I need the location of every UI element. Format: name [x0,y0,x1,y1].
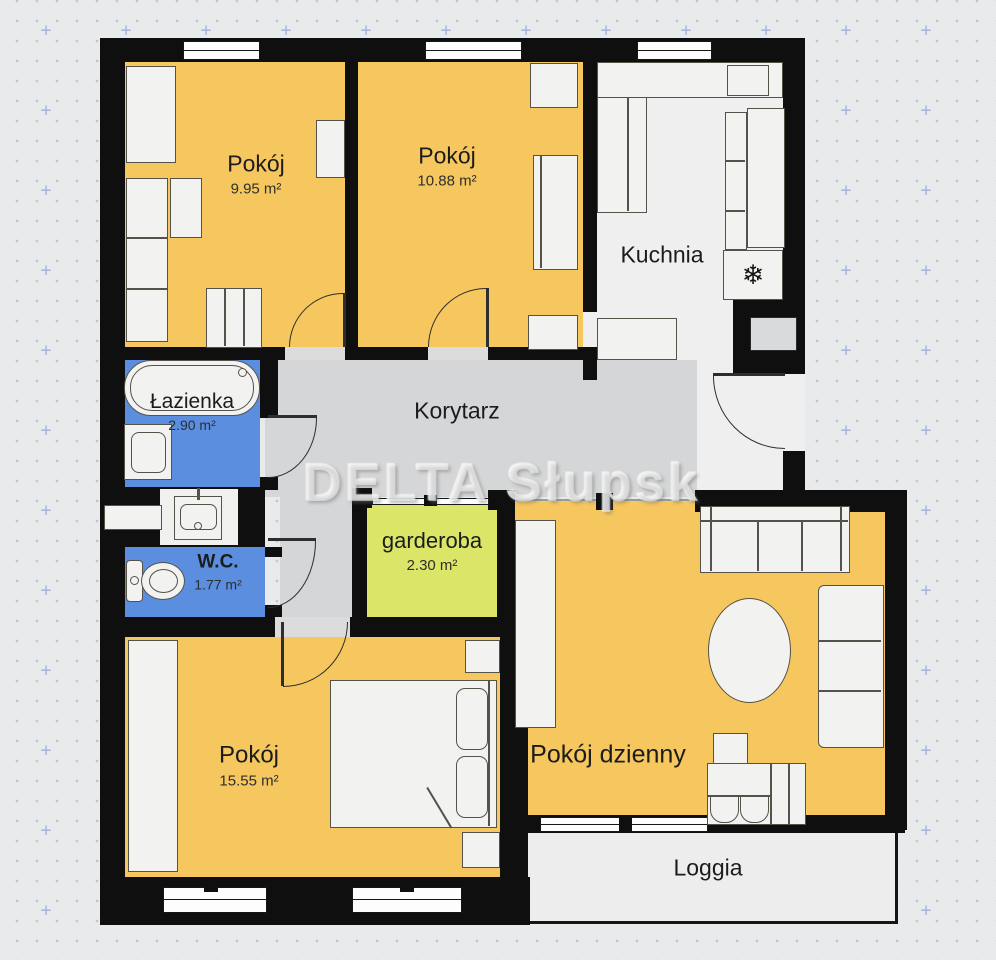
kitchen-counter-left [597,97,647,213]
bed-edge-line [540,156,542,268]
sofa-scallop-cushion [740,796,769,823]
grid-plus-mark: + [40,181,53,199]
wall-corridor-top-b [345,347,428,360]
grid-plus-mark: + [40,21,53,39]
living-oval-table [708,598,791,703]
grid-plus-mark: + [920,501,933,519]
kitchen-table [597,318,677,360]
grid-plus-mark: + [920,901,933,919]
shaft-duct [750,317,797,351]
wall-kitchen-left [583,38,597,312]
room3-door-leaf [281,622,284,686]
grid-plus-mark: + [40,581,53,599]
room2-window [425,41,522,60]
room1-door-threshold [285,347,345,360]
sofa-divider [788,764,790,824]
sofa-cushion-line [127,237,167,239]
grid-plus-mark: + [840,421,853,439]
window-pane-line [184,50,259,52]
grid-plus-mark: + [120,21,133,39]
grid-plus-mark: + [40,661,53,679]
grid-plus-mark: + [920,421,933,439]
room-name: Pokój [418,142,476,168]
kitchen-cabinet-column [725,112,747,250]
window-pane-line [638,50,711,52]
grid-plus-mark: + [40,501,53,519]
room-area: 2.30 m² [382,556,482,575]
grid-plus-mark: + [680,21,693,39]
balcony-window-divider [619,816,632,833]
room3-nightstand-bottom [462,832,500,868]
room-name: Pokój [227,150,285,176]
room2-nightstand [528,315,578,350]
grid-plus-mark: + [600,21,613,39]
sofa-divider [770,764,772,824]
room1-sofa [126,178,168,342]
wall-garderoba-right [497,505,515,637]
living-sofa-top [700,506,850,573]
room1-dresser [170,178,202,238]
room2-door-threshold [428,347,488,360]
grid-plus-mark: + [40,741,53,759]
loggia-label: Loggia [673,854,742,883]
grid-plus-mark: + [920,101,933,119]
grid-plus-mark: + [840,341,853,359]
room3-label: Pokój 15.55 m² [219,741,279,792]
sofa-back-line [701,520,848,522]
grid-plus-mark: + [920,581,933,599]
washbasin-drain [194,522,202,530]
grid-plus-mark: + [40,901,53,919]
room-area: 1.77 m² [194,576,241,594]
watermark: DELTA Słupsk [303,452,701,514]
room-name: Kuchnia [620,242,703,268]
room-name: Pokój dzienny [530,740,686,768]
grid-plus-mark: + [920,341,933,359]
entry-door-leaf [713,373,785,376]
window-pane-line [426,50,521,52]
bed-pillow [456,688,488,750]
grid-plus-mark: + [920,661,933,679]
grid-plus-mark: + [40,261,53,279]
sofa-seat-divider [757,521,759,571]
grid-plus-mark: + [40,341,53,359]
wall-room1-room2 [345,38,358,360]
couch-cushion-line [819,640,881,642]
room3-wardrobe [128,640,178,872]
room2-label: Pokój 10.88 m² [417,141,476,191]
toilet-bowl-inner [149,569,178,593]
cabinet-divider [726,160,745,162]
entry-door-threshold [783,374,805,451]
wall-living-right [885,490,907,830]
room3-nightstand-top [465,640,500,673]
cabinet-divider [726,210,745,212]
sofa-armrest-line [710,507,712,571]
washing-machine-drum [131,432,166,473]
living-wardrobe [515,520,556,728]
grid-plus-mark: + [40,421,53,439]
chest-divider [224,289,226,346]
room-name: Loggia [673,855,742,881]
toilet-flush-button [130,576,139,585]
grid-plus-mark: + [40,821,53,839]
window-pane-line [353,899,461,901]
bed-headboard-line [488,681,490,826]
room-name: Łazienka [150,390,234,413]
garderoba-label: garderoba 2.30 m² [382,527,482,575]
room-area: 9.95 m² [227,180,285,199]
window-pane-line [164,899,266,901]
room-name: garderoba [382,528,482,553]
washbasin-tap-stem [197,488,200,500]
grid-plus-mark: + [520,21,533,39]
wall-garderoba-left [352,497,367,637]
chest-divider [243,289,245,346]
room-area: 15.55 m² [219,773,279,792]
kitchen-opening-floor [583,312,597,347]
sofa-armrest-line [840,507,842,571]
room2-door-leaf [486,288,489,347]
freezer-icon: ❄ [742,259,765,293]
grid-plus-mark: + [840,181,853,199]
room-area: 2.90 m² [150,417,234,435]
living-room-label: Pokój dzienny [530,739,686,770]
counter-depth-line [627,98,629,211]
wc-door-leaf [268,538,316,541]
grid-plus-mark: + [920,741,933,759]
floorplan-canvas: ++++++++++++++++++++++++++++++++++++++++… [0,0,996,960]
grid-plus-mark: + [840,261,853,279]
niche-cabinet [104,505,162,530]
wall-corridor-top-a [100,347,285,360]
grid-plus-mark: + [840,21,853,39]
grid-plus-mark: + [200,21,213,39]
grid-plus-mark: + [440,21,453,39]
room1-wardrobe [126,66,176,163]
room-name: Korytarz [414,398,500,424]
kitchen-label: Kuchnia [620,241,703,270]
kitchen-window [637,41,712,60]
sofa-scallop-cushion [710,796,739,823]
couch-cushion-line [819,690,881,692]
living-couch-right [818,585,884,748]
grid-plus-mark: + [840,101,853,119]
wall-room3-top-a [100,617,275,637]
wall-bathroom-right-a [260,360,278,418]
room1-label: Pokój 9.95 m² [227,149,285,199]
bathtub-drain [238,368,247,377]
window-frame-tick [204,884,218,892]
wall-left [100,38,125,925]
room-area: 10.88 m² [417,172,476,191]
corridor-label: Korytarz [414,397,500,426]
room2-wardrobe [530,63,578,108]
room-name: Pokój [219,742,279,769]
window-frame-tick [400,884,414,892]
grid-plus-mark: + [40,101,53,119]
grid-plus-mark: + [920,181,933,199]
grid-plus-mark: + [920,21,933,39]
room1-window [183,41,260,60]
room-name: W.C. [197,551,238,572]
sofa-cushion-line [127,288,167,290]
kitchen-sink [727,65,769,96]
room1-door-leaf [343,293,346,347]
grid-plus-mark: + [920,261,933,279]
wc-label: W.C. 1.77 m² [194,550,241,593]
grid-plus-mark: + [760,21,773,39]
sofa-seat-divider [801,521,803,571]
room1-chest [206,288,262,348]
kitchen-counter-right [747,108,785,248]
bathroom-label: Łazienka 2.90 m² [150,389,234,435]
grid-plus-mark: + [920,821,933,839]
bed-pillow [456,756,488,818]
wall-niche-pipe [240,505,253,540]
grid-plus-mark: + [280,21,293,39]
bathroom-door-leaf [268,415,317,418]
room1-cabinet [316,120,345,178]
grid-plus-mark: + [360,21,373,39]
